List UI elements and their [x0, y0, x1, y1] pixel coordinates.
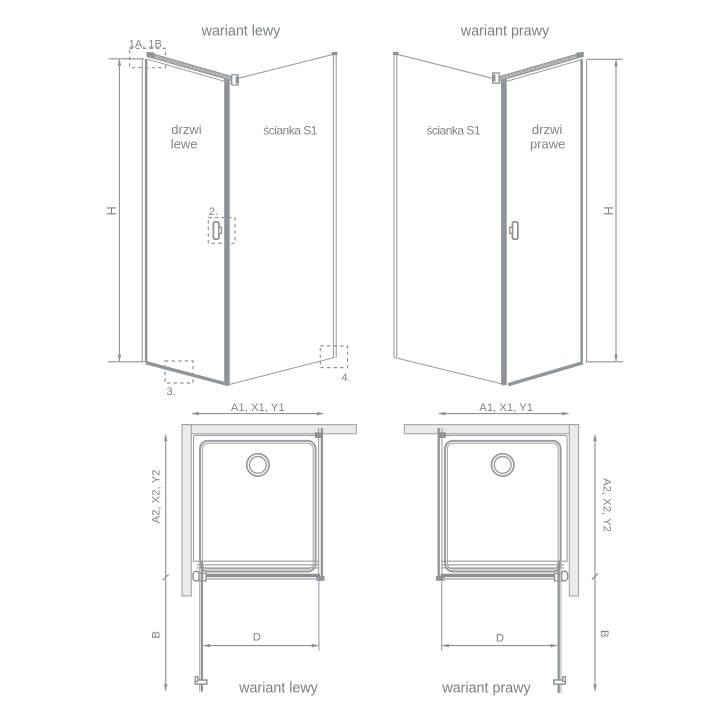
svg-text:2.: 2.: [209, 206, 218, 218]
svg-text:A1, X1, Y1: A1, X1, Y1: [479, 402, 533, 414]
svg-text:wariant prawy: wariant prawy: [441, 680, 531, 696]
svg-text:H: H: [602, 206, 616, 215]
svg-text:wariant lewy: wariant lewy: [201, 24, 282, 40]
svg-text:lewe: lewe: [171, 137, 198, 152]
svg-text:4.: 4.: [342, 372, 351, 384]
svg-text:A1, X1, Y1: A1, X1, Y1: [231, 402, 285, 414]
svg-text:wariant lewy: wariant lewy: [238, 680, 319, 696]
svg-text:D: D: [496, 633, 504, 645]
svg-text:prawe: prawe: [530, 137, 565, 152]
svg-text:drzwi: drzwi: [171, 122, 201, 137]
svg-text:ścianka S1: ścianka S1: [263, 124, 318, 138]
svg-text:drzwi: drzwi: [532, 122, 562, 137]
svg-text:B: B: [598, 630, 610, 638]
svg-text:ścianka S1: ścianka S1: [426, 124, 481, 138]
svg-text:A2, X2, Y2: A2, X2, Y2: [151, 470, 163, 524]
svg-text:A2, X2, Y2: A2, X2, Y2: [600, 478, 612, 532]
svg-text:wariant prawy: wariant prawy: [460, 24, 550, 40]
svg-text:B: B: [150, 631, 162, 639]
svg-text:H: H: [105, 206, 119, 215]
svg-text:3.: 3.: [167, 386, 176, 398]
svg-text:D: D: [253, 632, 261, 644]
